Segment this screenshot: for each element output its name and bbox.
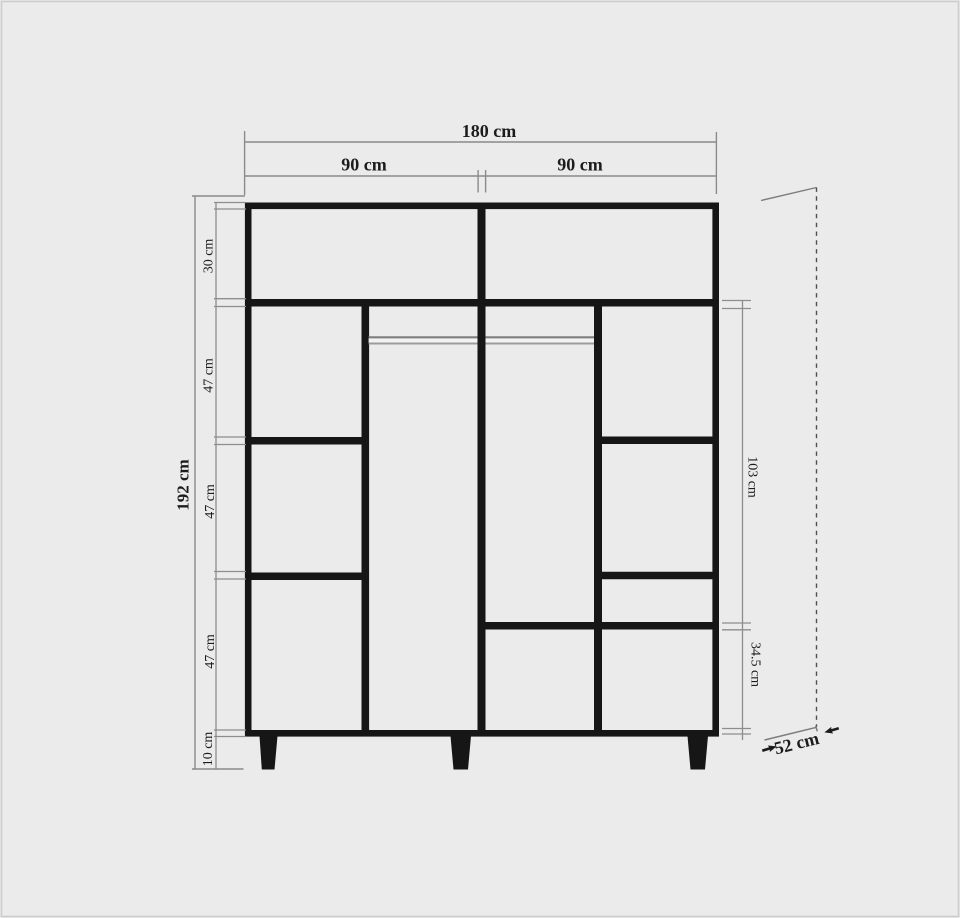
svg-text:47 cm: 47 cm [203, 484, 218, 519]
svg-text:180 cm: 180 cm [462, 121, 516, 141]
svg-text:47 cm: 47 cm [202, 358, 217, 393]
svg-text:34.5 cm: 34.5 cm [748, 642, 763, 687]
svg-text:10 cm: 10 cm [201, 732, 216, 767]
svg-text:90 cm: 90 cm [341, 155, 386, 175]
svg-text:30 cm: 30 cm [202, 239, 217, 274]
svg-text:90 cm: 90 cm [557, 155, 602, 175]
svg-text:103 cm: 103 cm [745, 456, 760, 498]
svg-text:192 cm: 192 cm [174, 459, 193, 510]
svg-text:47 cm: 47 cm [203, 634, 218, 669]
